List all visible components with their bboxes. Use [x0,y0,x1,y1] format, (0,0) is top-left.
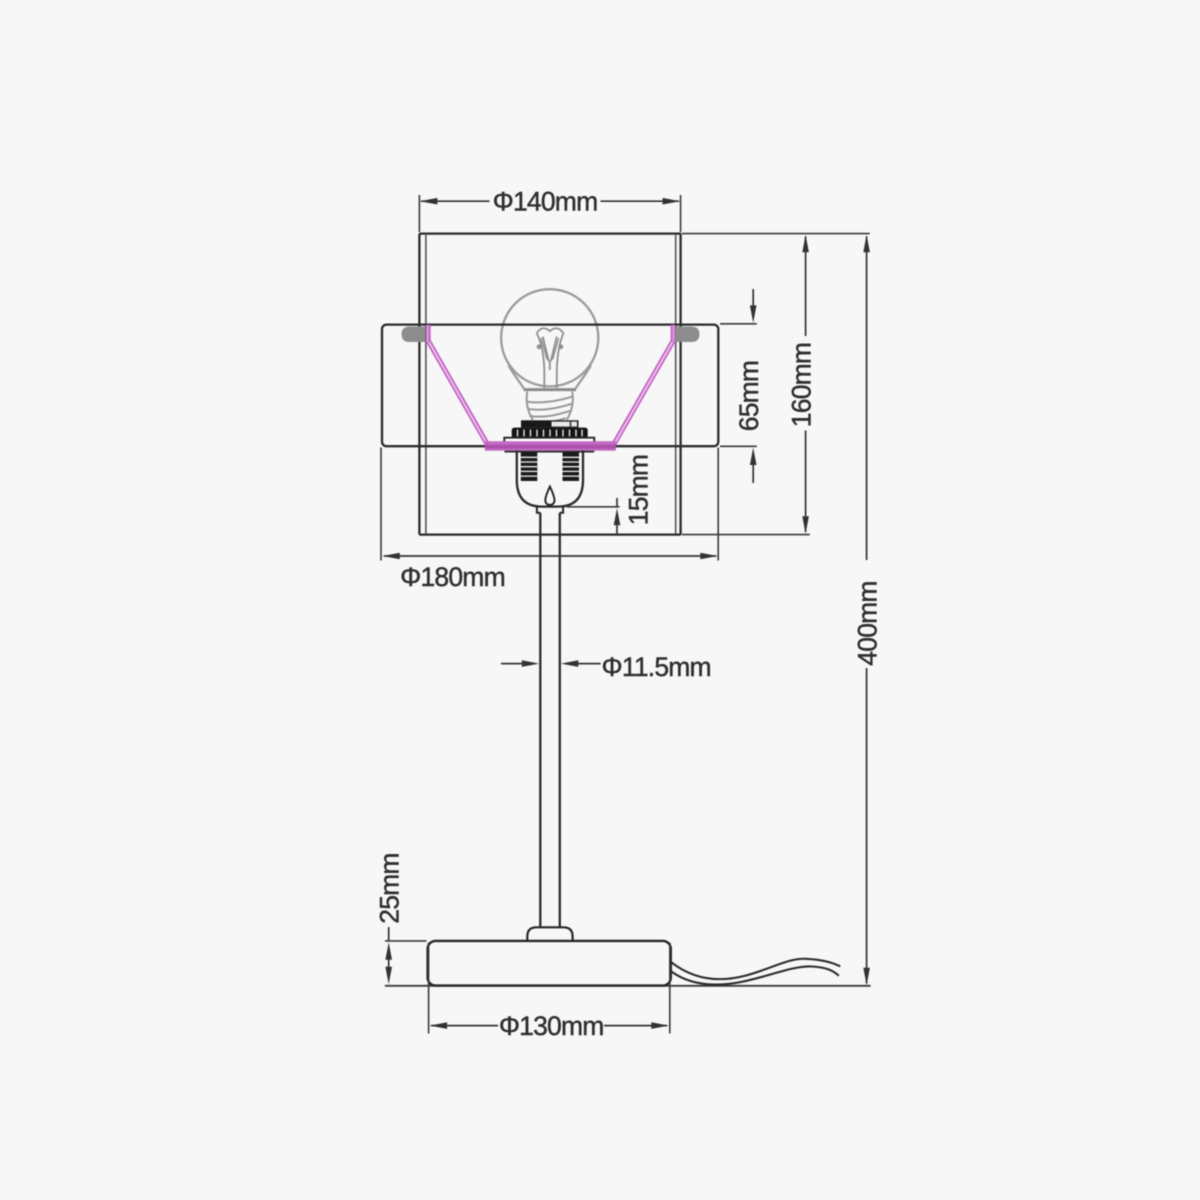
svg-text:25mm: 25mm [375,853,405,923]
svg-text:160mm: 160mm [786,343,816,427]
svg-text:Φ180mm: Φ180mm [400,562,505,592]
svg-text:Φ140mm: Φ140mm [493,187,598,217]
svg-text:15mm: 15mm [623,455,653,525]
svg-text:65mm: 65mm [734,361,764,431]
svg-text:Φ130mm: Φ130mm [499,1011,604,1041]
svg-text:400mm: 400mm [853,581,883,665]
svg-text:Φ11.5mm: Φ11.5mm [602,652,711,682]
